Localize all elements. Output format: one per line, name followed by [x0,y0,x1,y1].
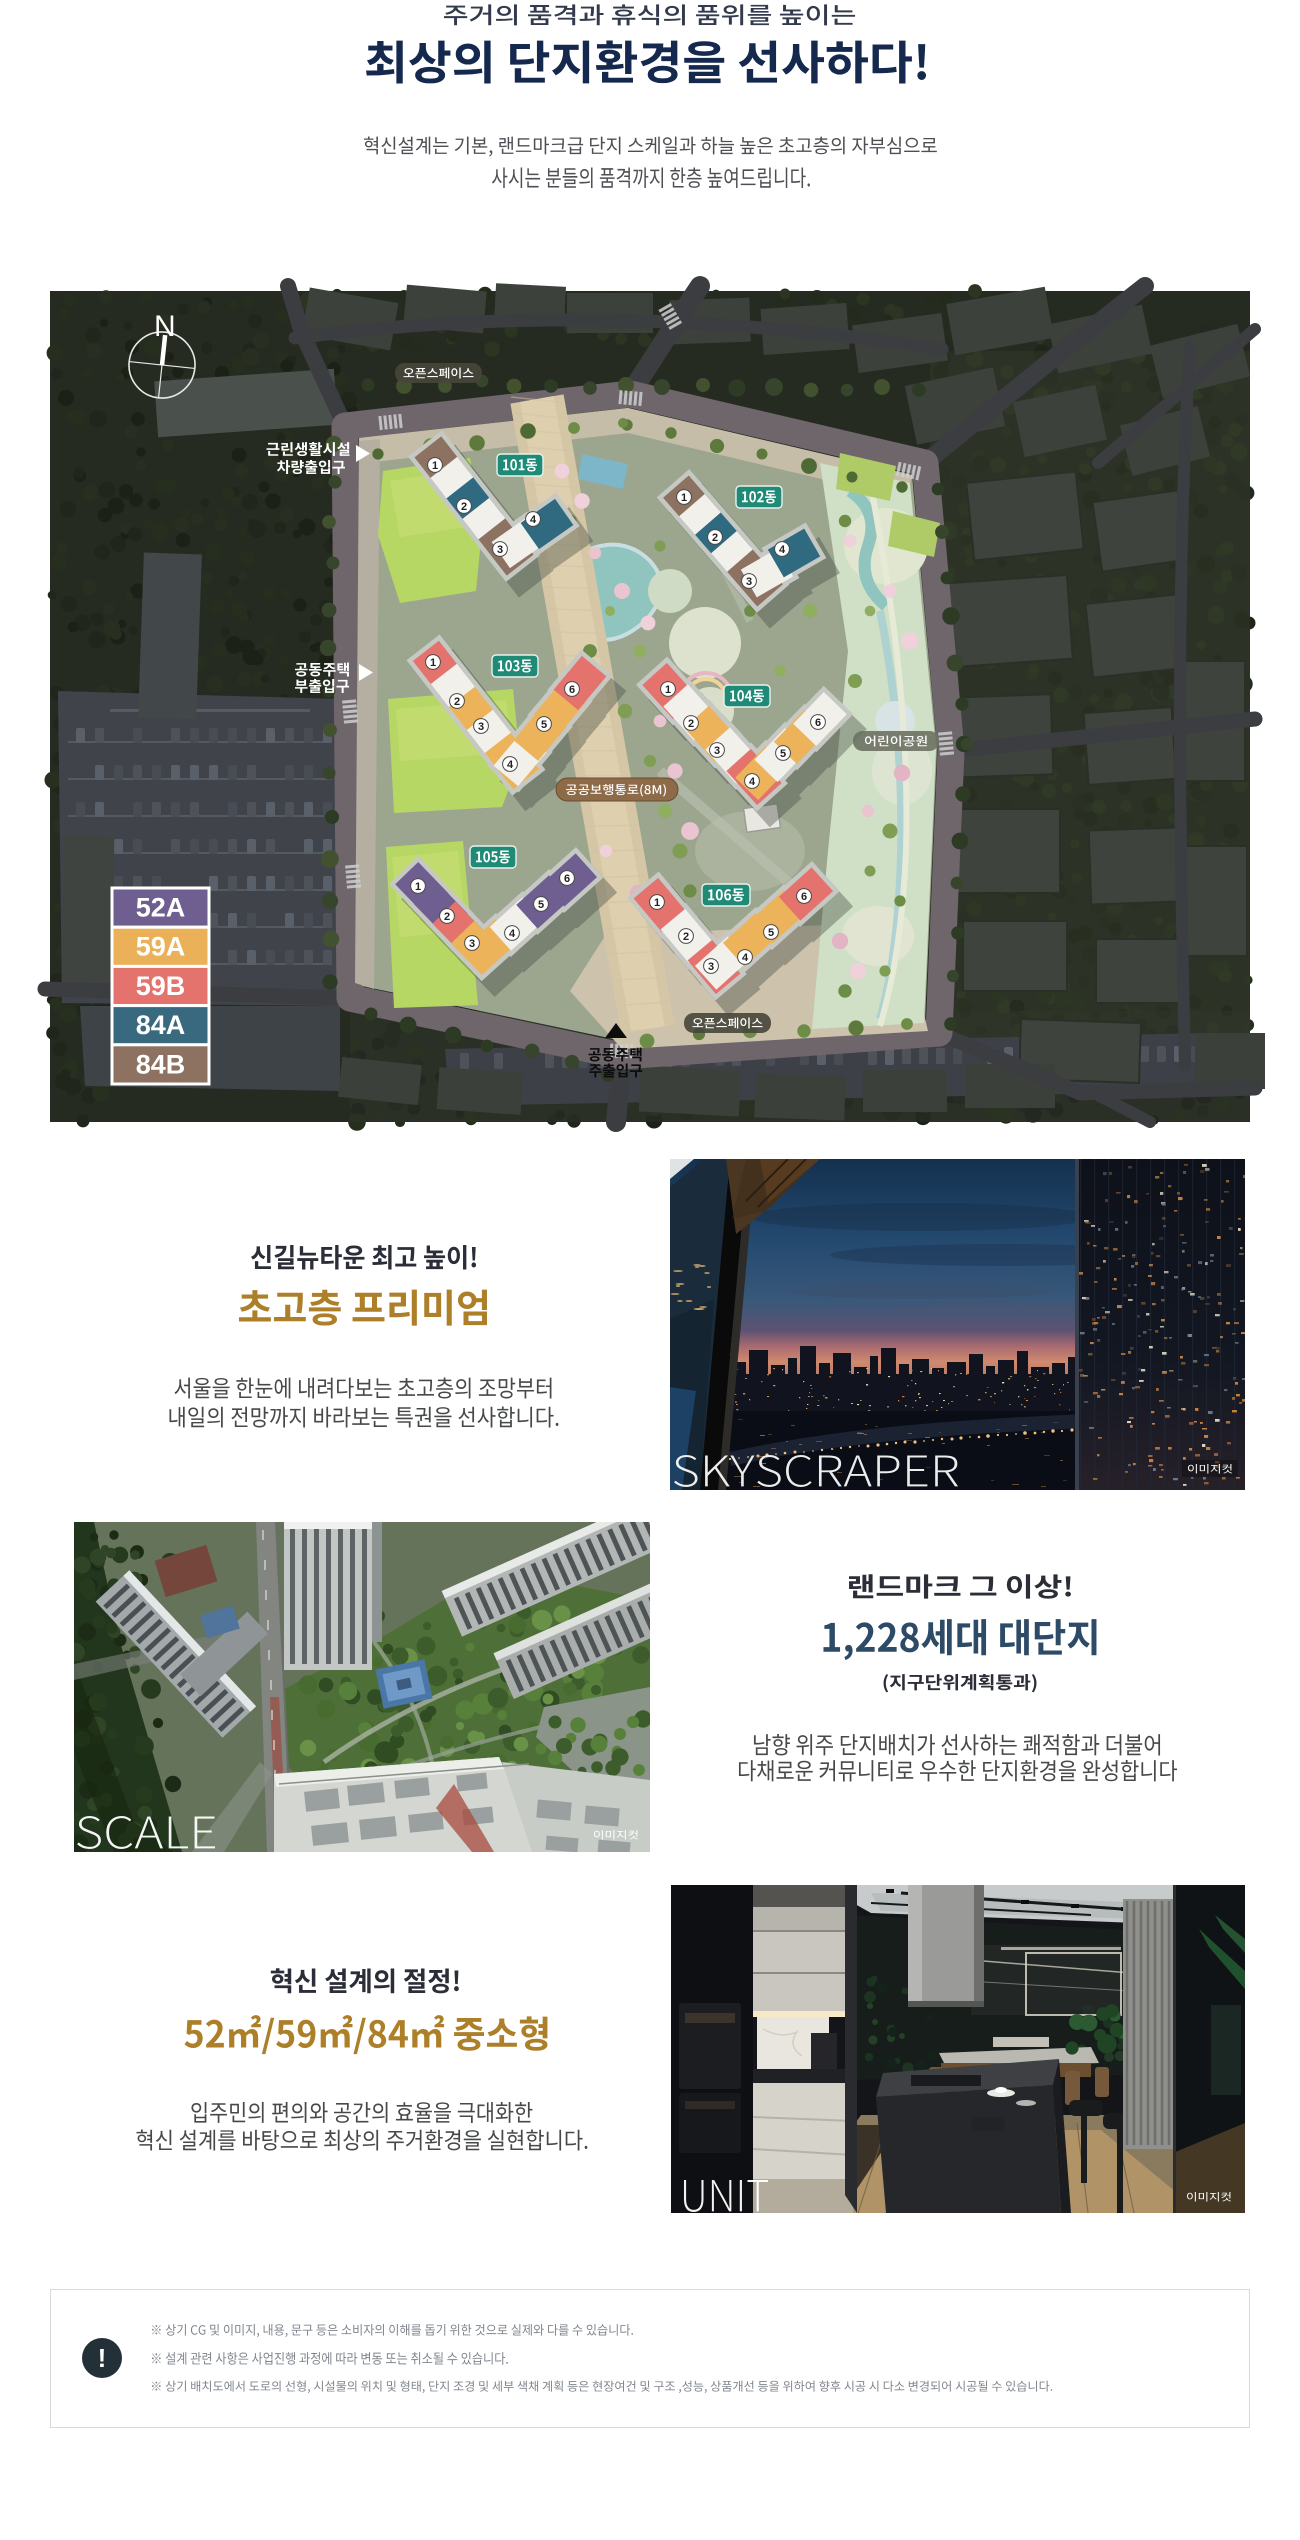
svg-text:2: 2 [444,911,450,923]
svg-text:59B: 59B [136,971,186,1001]
svg-text:84A: 84A [136,1010,186,1040]
svg-text:1: 1 [415,881,421,893]
svg-text:3: 3 [497,544,503,556]
svg-text:1: 1 [681,492,687,504]
svg-text:!: ! [98,2343,107,2373]
svg-text:3: 3 [746,576,752,588]
svg-text:4: 4 [749,776,756,788]
svg-text:6: 6 [815,717,821,729]
svg-text:5: 5 [780,748,786,760]
svg-text:59A: 59A [136,932,186,962]
svg-text:1: 1 [430,657,436,669]
svg-text:3: 3 [478,721,484,733]
svg-text:4: 4 [530,514,537,526]
svg-text:4: 4 [507,759,514,771]
svg-text:4: 4 [509,928,516,940]
svg-text:2: 2 [461,501,467,513]
svg-text:5: 5 [541,719,547,731]
svg-text:2: 2 [454,696,460,708]
svg-text:2: 2 [712,532,718,544]
svg-text:6: 6 [801,891,807,903]
svg-text:3: 3 [714,745,720,757]
svg-text:2: 2 [688,718,694,730]
svg-text:3: 3 [708,961,714,973]
svg-text:1: 1 [665,684,671,696]
svg-text:5: 5 [538,899,544,911]
svg-text:5: 5 [768,927,774,939]
svg-text:52A: 52A [136,893,186,923]
svg-text:3: 3 [469,938,475,950]
svg-text:6: 6 [569,684,575,696]
svg-text:2: 2 [683,931,689,943]
svg-text:4: 4 [779,544,786,556]
svg-text:6: 6 [564,873,570,885]
svg-text:1: 1 [654,897,660,909]
svg-text:84B: 84B [136,1049,186,1079]
svg-text:N: N [154,310,176,343]
svg-text:1: 1 [432,460,438,472]
svg-text:4: 4 [742,952,749,964]
